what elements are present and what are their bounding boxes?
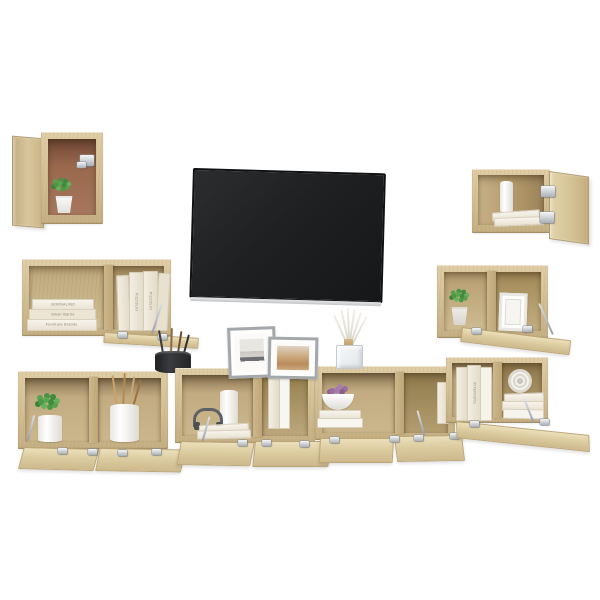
br-vertical-book-3 <box>480 367 492 421</box>
rshelf-divider <box>487 271 496 332</box>
cl-hinge-2-icon <box>262 440 271 446</box>
vertical-book-2: PIZZOLIO <box>129 272 144 331</box>
cube-hinge-small-icon <box>77 162 86 168</box>
br-stack-3 <box>503 409 544 420</box>
bl-utensil-cup <box>110 404 139 442</box>
br-vertical-book-2: INTERIORS <box>467 365 481 421</box>
vertical-book-4 <box>155 273 170 332</box>
cl-back-panel-2 <box>279 377 290 429</box>
tr-open-door <box>549 171 589 245</box>
br-hinge-2-icon <box>540 419 549 425</box>
bl-body <box>18 371 168 449</box>
bl-hinge-1-icon <box>58 448 67 454</box>
br-vertical-book-2-spine: INTERIORS <box>472 382 476 404</box>
cr-body <box>315 366 455 440</box>
lshelf-divider <box>104 265 113 330</box>
cr-hinge-3-icon <box>414 435 423 441</box>
bl-flap-right <box>95 448 186 472</box>
br-body: INTERIORS <box>446 357 548 423</box>
tv-screen <box>189 168 386 303</box>
cube-plant-leaves <box>54 183 59 188</box>
rshelf-succulent <box>452 294 457 299</box>
diffuser-bottle <box>336 345 363 369</box>
rshelf-hinge-2-icon <box>523 326 532 332</box>
bl-hinge-4-icon <box>152 449 161 455</box>
tr-hinge-top-icon <box>541 186 555 197</box>
tr-flat-book-2 <box>494 216 544 227</box>
cr-hinge-1-icon <box>330 437 339 443</box>
lshelf-hinge-1-icon <box>118 332 127 338</box>
stacked-book-3-title: Furniture Brands <box>46 323 78 327</box>
picture-frame-right-image <box>277 346 309 371</box>
rshelf-hinge-1-icon <box>472 328 481 334</box>
rshelf-frame-sketch <box>505 299 522 326</box>
cl-divider <box>253 374 262 437</box>
cr-divider <box>395 372 404 434</box>
bl-hinge-2-icon <box>88 449 97 455</box>
stacked-book-2-title: Silver Barrie <box>51 313 74 317</box>
cl-hinge-3-icon <box>300 441 309 447</box>
cube-open-door <box>12 136 44 229</box>
product-photo-stage: BORSALINO Silver Barrie Furniture Brands… <box>0 0 600 600</box>
picture-frame-right <box>268 337 319 380</box>
bl-plant-leaves <box>38 399 44 405</box>
tr-hinge-bottom-icon <box>540 212 554 223</box>
stacked-book-1-title: BORSALINO <box>51 303 75 307</box>
bl-hinge-3-icon <box>118 450 127 456</box>
tr-body <box>472 169 550 233</box>
vertical-book-3-spine: PIZZOLIO <box>149 292 153 310</box>
br-rope-coil <box>508 369 532 393</box>
cube-body <box>41 132 103 224</box>
vertical-book-2-spine: PIZZOLIO <box>135 292 139 310</box>
stacked-book-3: Furniture Brands <box>27 319 97 331</box>
cr-hinge-2-icon <box>390 436 399 442</box>
lshelf-body: BORSALINO Silver Barrie Furniture Brands… <box>22 259 171 336</box>
cl-hinge-1-icon <box>238 440 247 446</box>
br-hinge-1-icon <box>470 421 479 427</box>
bl-divider <box>89 377 98 443</box>
cr-book-under-2 <box>317 418 363 428</box>
tv <box>189 168 386 303</box>
picture-frame-left-image <box>240 339 265 362</box>
cube-interior <box>48 139 96 215</box>
br-divider <box>493 362 502 418</box>
tr-white-bottle <box>500 181 513 213</box>
cl-body <box>175 368 315 443</box>
bl-plant-pot <box>38 415 62 442</box>
